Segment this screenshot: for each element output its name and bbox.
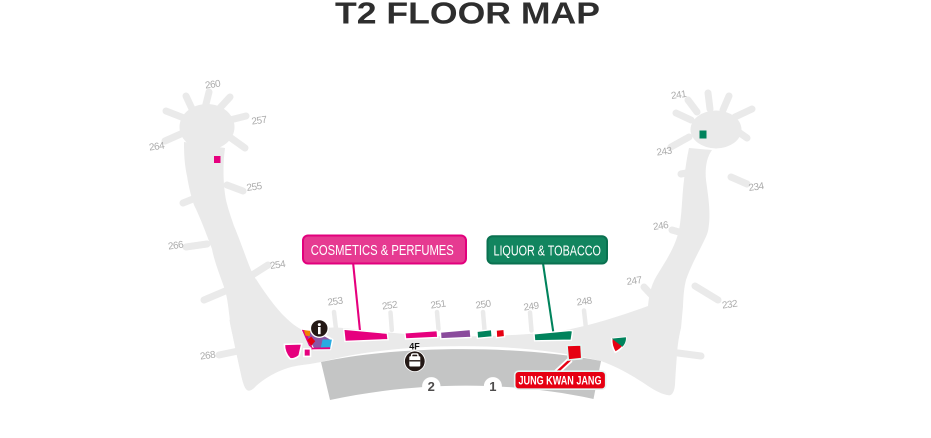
svg-text:255: 255 (246, 181, 263, 194)
svg-text:252: 252 (381, 299, 398, 312)
svg-text:LIQUOR & TOBACCO: LIQUOR & TOBACCO (493, 244, 601, 260)
svg-text:243: 243 (656, 145, 673, 158)
svg-text:266: 266 (167, 239, 184, 252)
svg-text:241: 241 (670, 89, 687, 102)
svg-text:247: 247 (626, 275, 643, 288)
svg-text:264: 264 (148, 140, 165, 153)
svg-text:COSMETICS & PERFUMES: COSMETICS & PERFUMES (311, 243, 454, 259)
svg-text:1: 1 (489, 379, 496, 394)
svg-text:248: 248 (576, 295, 593, 308)
svg-text:251: 251 (430, 298, 447, 311)
svg-text:250: 250 (475, 298, 492, 311)
svg-text:246: 246 (652, 220, 669, 233)
svg-text:260: 260 (204, 78, 221, 91)
svg-text:2: 2 (428, 379, 435, 394)
svg-text:268: 268 (199, 349, 216, 362)
svg-text:JUNG KWAN JANG: JUNG KWAN JANG (519, 373, 602, 387)
svg-text:232: 232 (721, 298, 738, 311)
svg-text:T2 FLOOR MAP: T2 FLOOR MAP (335, 0, 600, 31)
svg-text:254: 254 (269, 259, 286, 272)
svg-text:249: 249 (523, 300, 540, 313)
svg-text:257: 257 (251, 114, 268, 127)
svg-text:234: 234 (748, 181, 765, 194)
svg-text:253: 253 (327, 295, 344, 308)
